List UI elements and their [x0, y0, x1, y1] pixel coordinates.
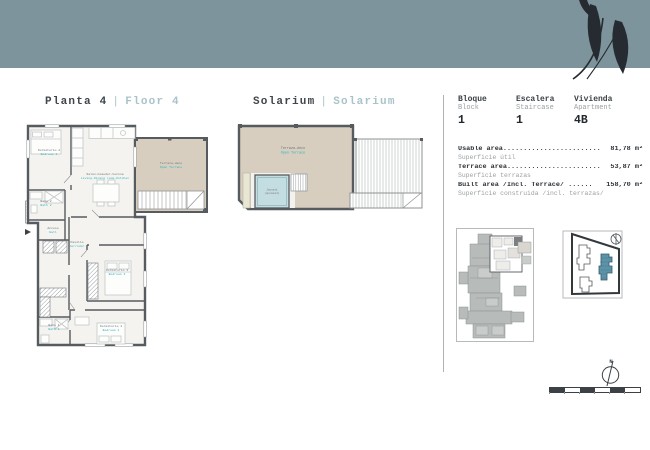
built-area-label: Built area /Incl. Terrace/ ......	[458, 182, 593, 190]
built-area-row: Built area /Incl. Terrace/ ...... 158,70…	[458, 182, 643, 190]
solarium-terrace-en: Open Terrace	[281, 151, 305, 156]
terrace-area-label: Terrace area.......................	[458, 164, 601, 172]
main-floorplan: Dormitorio 2 Bedroom 2 Salón-Comedor-Coc…	[25, 105, 215, 365]
solarium-lower-stairs	[350, 193, 422, 208]
area-summary: Usable area........................ 81,7…	[458, 146, 643, 200]
info-staircase-value: 1	[516, 114, 574, 127]
usable-area-sub: Superficie útil	[458, 154, 643, 161]
info-block-es: Bloque	[458, 95, 516, 104]
info-apartment: Vivienda Apartment 4B	[574, 95, 632, 127]
room-bath2-en: Bath 2	[40, 203, 51, 207]
info-apartment-value: 4B	[574, 114, 632, 127]
terrace-area-sub: Superficie terrazas	[458, 172, 643, 179]
room-bath1-en: Bath 1	[48, 327, 59, 331]
usable-area-row: Usable area........................ 81,7…	[458, 146, 643, 154]
entry-arrow-icon	[25, 229, 31, 235]
room-hall-en: Hall	[49, 230, 57, 234]
room-living-en: Living-Dining room-Kitchen	[81, 176, 129, 180]
leaf-shape	[612, 20, 628, 74]
info-staircase: Escalera Staircase 1	[516, 95, 574, 127]
solarium-terrace-es: Terraza-deco	[281, 146, 305, 151]
jacuzzi-label-1: Jacuzzi	[266, 188, 278, 192]
info-block: Bloque Block 1	[458, 95, 516, 127]
built-area-value: 158,70 m²	[606, 182, 643, 190]
info-block-value: 1	[458, 114, 516, 127]
usable-area-label: Usable area........................	[458, 146, 601, 154]
pergola	[354, 138, 423, 193]
solarium-stairs	[291, 174, 307, 191]
scale-bar-ticks	[549, 392, 639, 394]
section-divider	[443, 95, 444, 372]
solarium-terrace-label: Terraza-deco Open Terrace	[281, 146, 305, 156]
building-key-plan	[456, 228, 534, 342]
info-block-en: Block	[458, 104, 516, 112]
info-apartment-en: Apartment	[574, 104, 632, 112]
solarium-plan: Jacuzzi (opcional) Terraza-deco Open Ter…	[235, 105, 425, 230]
room-bedroom2-en: Bedroom 2	[41, 152, 58, 156]
built-area-sub: Superficie construida /incl. terrazas/	[458, 190, 643, 197]
info-apartment-es: Vivienda	[574, 95, 632, 104]
room-terrace-en: Open Terrace	[160, 165, 182, 169]
terrace-area	[134, 137, 207, 212]
terrace-area-value: 53,87 m²	[610, 164, 643, 172]
leaf-illustration	[543, 0, 650, 80]
planter-strip	[243, 173, 250, 208]
room-bedroom1-en: Bedroom 1	[103, 328, 120, 332]
room-bedroom3-en: Bedroom 3	[109, 272, 126, 276]
brochure-page: Planta 4|Floor 4 Solarium|Solarium	[0, 0, 650, 450]
usable-area-value: 81,78 m²	[610, 146, 643, 154]
terrace-stairs	[138, 191, 204, 209]
info-staircase-es: Escalera	[516, 95, 574, 104]
north-arrow: N	[594, 355, 630, 389]
info-staircase-en: Staircase	[516, 104, 574, 112]
jacuzzi: Jacuzzi (opcional)	[255, 175, 289, 208]
room-corridor-en: Corridor	[70, 244, 85, 248]
unit-info: Bloque Block 1 Escalera Staircase 1 Vivi…	[458, 95, 644, 127]
terrace-area-row: Terrace area....................... 53,8…	[458, 164, 643, 172]
jacuzzi-label-2: (opcional)	[264, 192, 280, 195]
site-key-plan	[551, 228, 629, 308]
